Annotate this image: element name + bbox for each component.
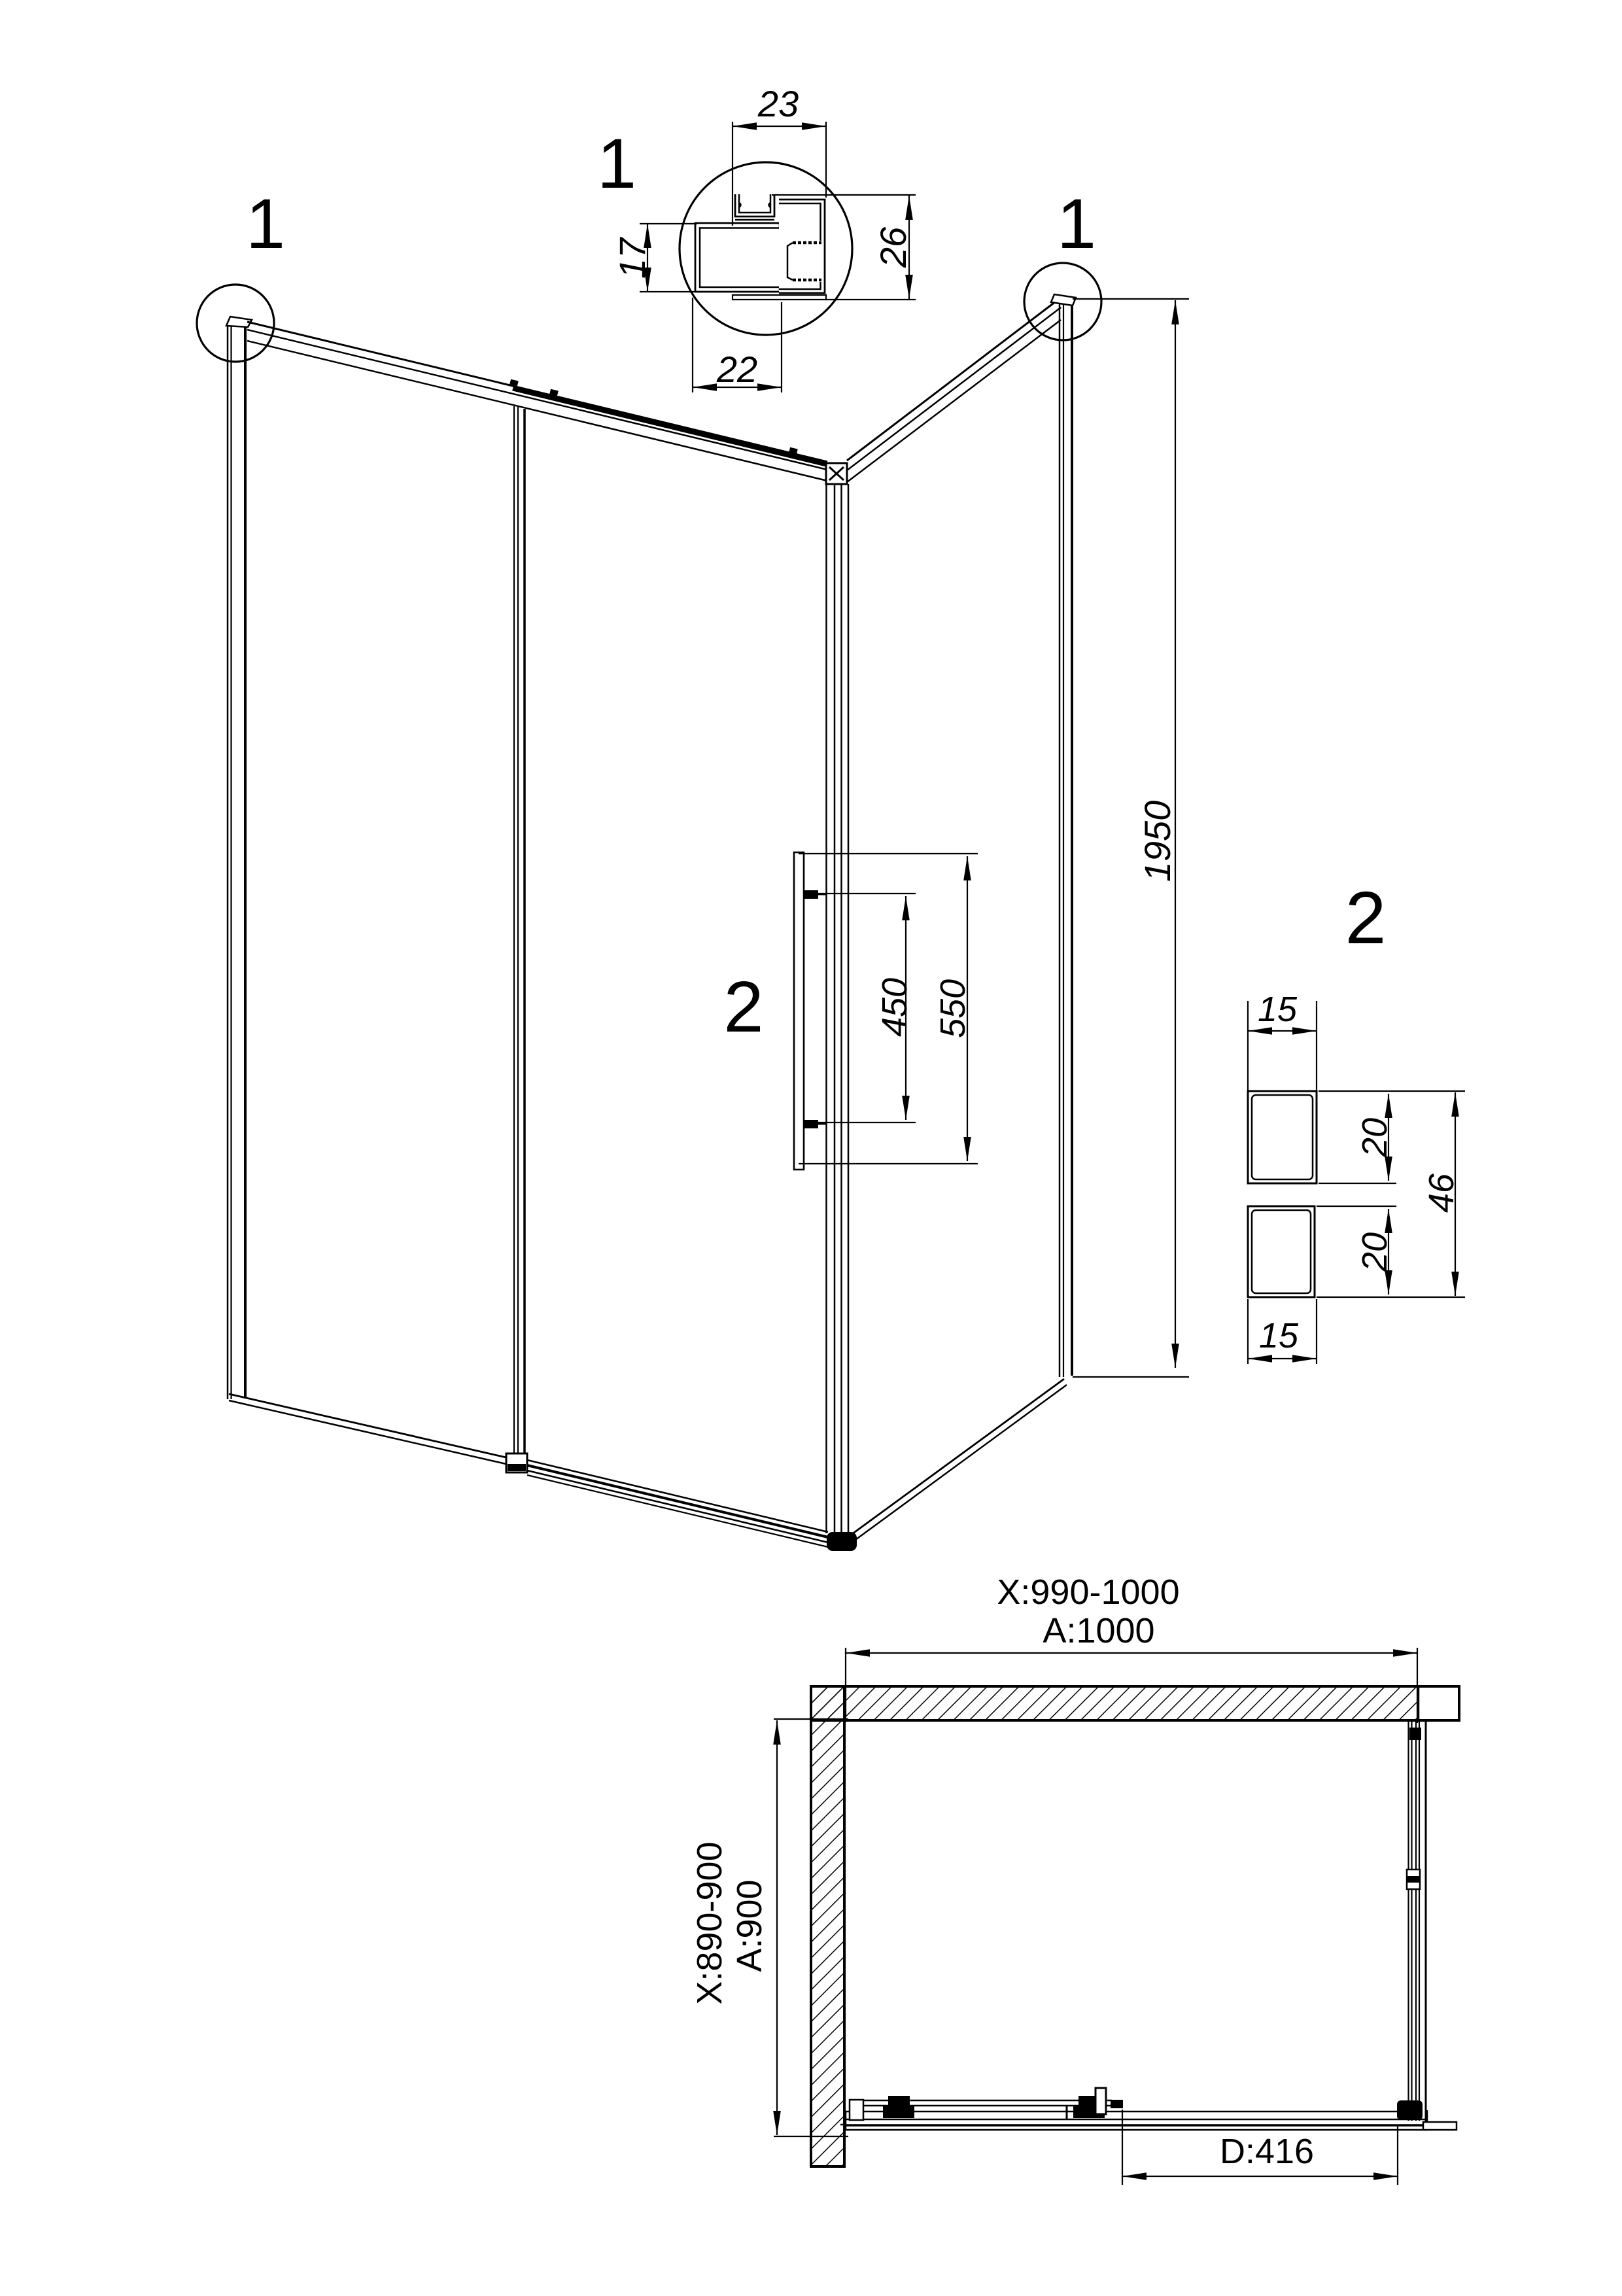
svg-text:46: 46 — [1422, 1173, 1461, 1213]
svg-text:20: 20 — [1355, 1118, 1394, 1158]
svg-text:1: 1 — [246, 184, 285, 263]
svg-text:22: 22 — [716, 349, 757, 390]
svg-text:15: 15 — [1258, 990, 1298, 1029]
svg-text:15: 15 — [1259, 1316, 1299, 1355]
svg-text:2: 2 — [1345, 877, 1387, 959]
svg-text:2: 2 — [723, 967, 763, 1047]
svg-text:A:1000: A:1000 — [1043, 1611, 1154, 1650]
svg-text:17: 17 — [612, 237, 653, 279]
svg-text:550: 550 — [933, 979, 973, 1038]
svg-text:X:990-1000: X:990-1000 — [997, 1573, 1179, 1612]
svg-text:20: 20 — [1355, 1232, 1394, 1272]
svg-text:26: 26 — [872, 226, 914, 268]
svg-text:A:900: A:900 — [730, 1879, 769, 1972]
svg-text:X:890-900: X:890-900 — [690, 1841, 729, 2004]
svg-text:1: 1 — [1057, 184, 1096, 263]
svg-text:450: 450 — [875, 978, 914, 1037]
svg-text:1: 1 — [597, 124, 636, 203]
svg-text:D:416: D:416 — [1220, 2132, 1314, 2171]
svg-text:23: 23 — [757, 83, 799, 124]
svg-text:1950: 1950 — [1137, 801, 1178, 882]
